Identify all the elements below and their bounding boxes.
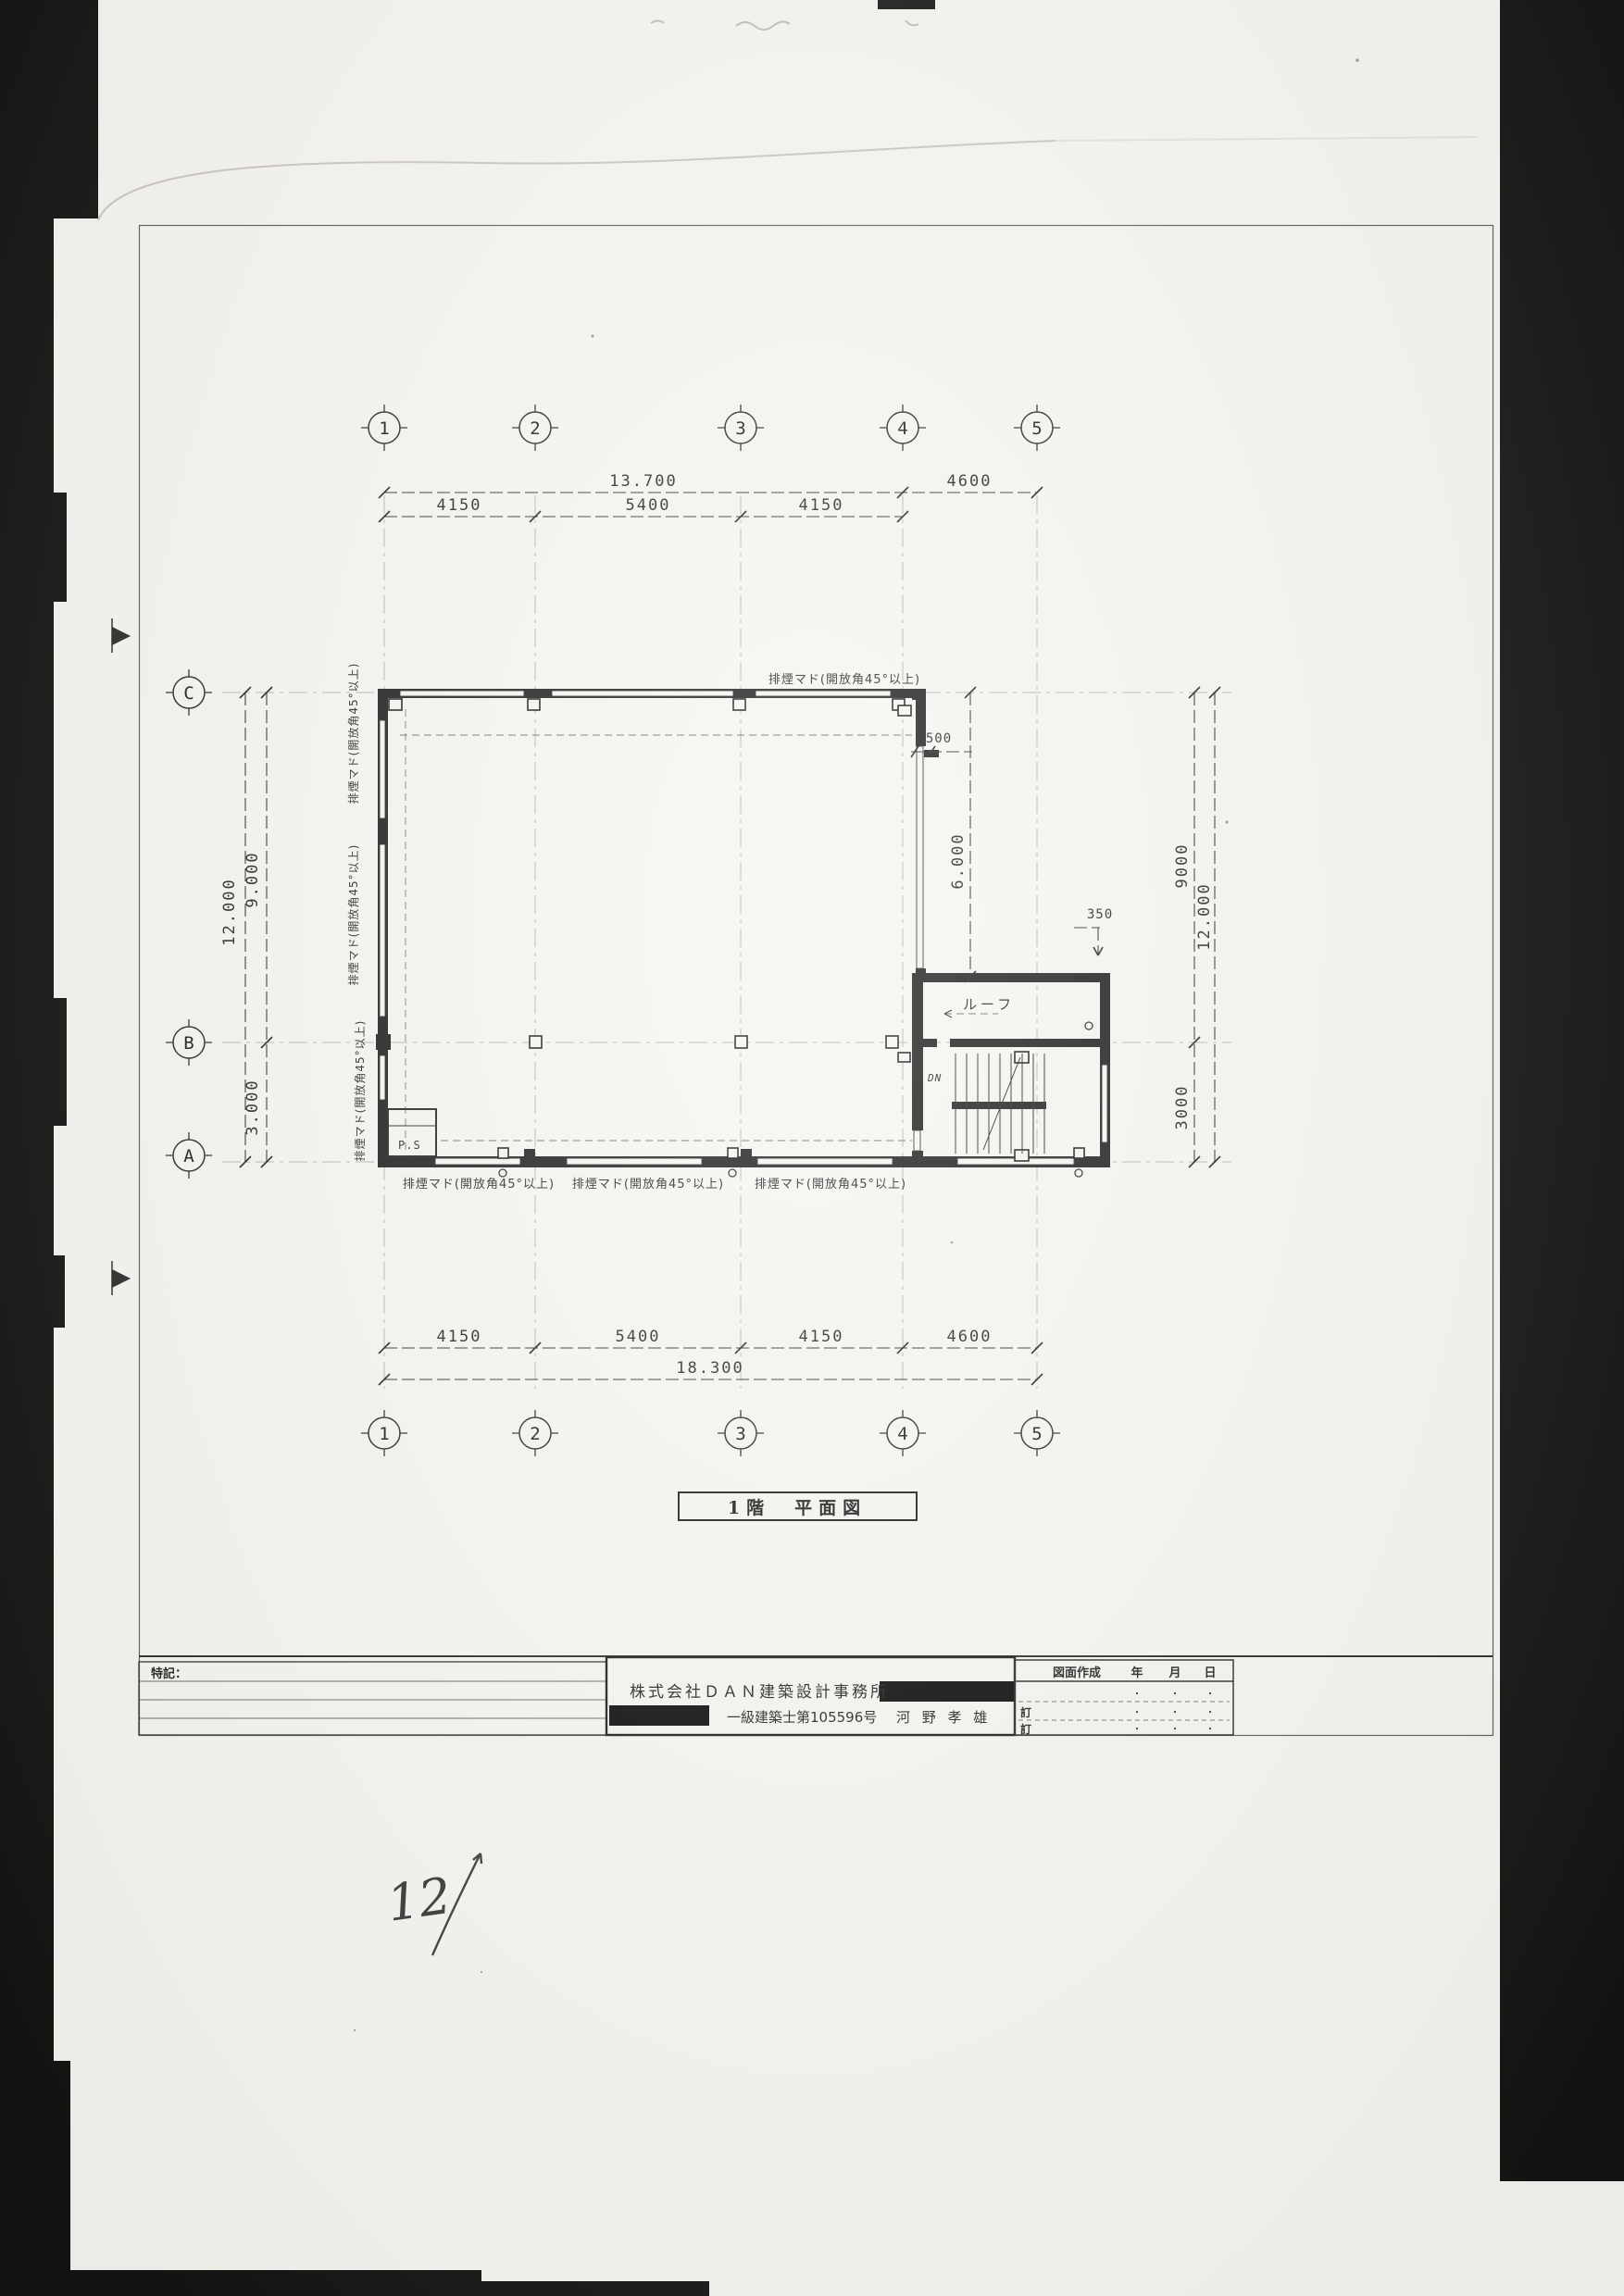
scan-smudges bbox=[651, 20, 918, 30]
license-number: 一級建築士第105596号 bbox=[727, 1709, 877, 1726]
handwritten-number: 12 bbox=[383, 1866, 455, 1933]
dim-bottom-4-5: 4600 bbox=[947, 1328, 993, 1346]
redaction-bar bbox=[880, 1681, 1015, 1702]
grid-label: 1 bbox=[379, 1424, 389, 1444]
dim-bottom-overall: 18.300 bbox=[676, 1359, 743, 1378]
roof-label: ルーフ bbox=[963, 996, 1015, 1013]
dim-corner-offset: 500 bbox=[926, 731, 952, 746]
dim-top-overall: 13.700 bbox=[609, 472, 677, 491]
date-dot: ・ bbox=[1170, 1708, 1180, 1718]
grid-bubble-col3-bottom: 3 bbox=[718, 1410, 764, 1456]
smoke-vent-note-top: 排煙マド(開放角45°以上) bbox=[768, 673, 920, 687]
grid-label: 4 bbox=[897, 418, 907, 439]
smoke-vent-note-bottom-1: 排煙マド(開放角45°以上) bbox=[403, 1178, 555, 1192]
grid-bubble-col2-top: 2 bbox=[512, 405, 558, 451]
grid-label: 3 bbox=[735, 418, 745, 439]
grid-label: B bbox=[183, 1033, 194, 1054]
firm-name: 株式会社ＤＡＮ建築設計事務所 bbox=[630, 1683, 889, 1702]
title-block: 特記： 株式会社ＤＡＮ建築設計事務所 一級建築士第105596号 河 野 孝 雄… bbox=[139, 1656, 1493, 1736]
dim-stair-bay: 6.000 bbox=[949, 832, 968, 889]
grid-centerlines bbox=[222, 495, 1231, 1389]
date-dot: ・ bbox=[1132, 1708, 1142, 1718]
grid-bubble-row-a: A bbox=[166, 1132, 212, 1179]
grid-label: 3 bbox=[735, 1424, 745, 1444]
month-label: 月 bbox=[1168, 1666, 1181, 1680]
dim-top-1-2: 4150 bbox=[437, 496, 482, 515]
grid-bubble-col4-top: 4 bbox=[880, 405, 926, 451]
dim-right-c-b: 9000 bbox=[1173, 843, 1192, 889]
revision-row-label: 訂 bbox=[1020, 1705, 1031, 1719]
grid-bubble-col1-top: 1 bbox=[361, 405, 407, 451]
dim-top-2-3: 5400 bbox=[626, 496, 671, 515]
drawing-title: 1階 平面図 bbox=[728, 1498, 867, 1518]
dim-eave-offset: 350 bbox=[1087, 907, 1113, 922]
grid-bubble-row-b: B bbox=[166, 1019, 212, 1066]
dim-bottom-3-4: 4150 bbox=[799, 1328, 844, 1346]
smoke-vent-note-left-1: 排煙マド(開放角45°以上) bbox=[346, 663, 360, 805]
created-label: 図面作成 bbox=[1053, 1666, 1101, 1680]
grid-bubble-col5-bottom: 5 bbox=[1014, 1410, 1060, 1456]
floor-plan-sheet: P.S DN ルーフ 13.700 4600 415 bbox=[0, 0, 1624, 2296]
smoke-vent-note-left-3: 排煙マド(開放角45°以上) bbox=[353, 1020, 367, 1162]
window-openings bbox=[380, 691, 1107, 1165]
date-dot: ・ bbox=[1132, 1725, 1142, 1735]
scan-black-bars bbox=[0, 0, 1624, 2296]
drawing-title-box: 1階 平面図 bbox=[679, 1492, 917, 1520]
year-label: 年 bbox=[1131, 1666, 1143, 1680]
date-dot: ・ bbox=[1170, 1725, 1180, 1735]
grid-label: 4 bbox=[897, 1424, 907, 1444]
dimension-lines bbox=[245, 493, 1215, 1379]
date-dot: ・ bbox=[1170, 1690, 1180, 1700]
dim-right-b-a: 3000 bbox=[1173, 1085, 1192, 1130]
interior-dashed-lines bbox=[400, 709, 998, 1151]
dimension-labels: 13.700 4600 4150 5400 4150 4150 5400 415… bbox=[220, 472, 1214, 1378]
dim-right-overall: 12.000 bbox=[1195, 882, 1214, 950]
day-label: 日 bbox=[1204, 1666, 1216, 1680]
grid-bubble-col1-bottom: 1 bbox=[361, 1410, 407, 1456]
stair-direction-label: DN bbox=[927, 1072, 942, 1084]
pipe-shaft-label: P.S bbox=[398, 1139, 421, 1152]
date-dots: ・ ・ ・ ・ ・ ・ ・ ・ ・ bbox=[1132, 1690, 1215, 1735]
dim-top-4-5: 4600 bbox=[947, 472, 993, 491]
grid-label: A bbox=[183, 1146, 194, 1167]
grid-bubble-col3-top: 3 bbox=[718, 405, 764, 451]
date-dot: ・ bbox=[1206, 1690, 1215, 1700]
grid-label: 2 bbox=[530, 418, 540, 439]
stair-treads bbox=[944, 1010, 1044, 1154]
smoke-vent-annotations: 排煙マド(開放角45°以上) 排煙マド(開放角45°以上) 排煙マド(開放角45… bbox=[346, 663, 920, 1192]
architect-name: 河 野 孝 雄 bbox=[896, 1709, 991, 1726]
dim-left-b-a: 3.000 bbox=[244, 1079, 262, 1135]
grid-label: 2 bbox=[530, 1424, 540, 1444]
grid-bubble-row-c: C bbox=[166, 669, 212, 716]
dim-bottom-1-2: 4150 bbox=[437, 1328, 482, 1346]
grid-bubble-col2-bottom: 2 bbox=[512, 1410, 558, 1456]
notes-label: 特記： bbox=[151, 1666, 187, 1681]
revision-row-label: 訂 bbox=[1020, 1722, 1031, 1736]
paper-edge-curve bbox=[98, 137, 1478, 220]
notes-box bbox=[139, 1662, 606, 1735]
grid-bubble-col5-top: 5 bbox=[1014, 405, 1060, 451]
grid-label: 5 bbox=[1031, 1424, 1042, 1444]
dim-top-3-4: 4150 bbox=[799, 496, 844, 515]
grid-label: 5 bbox=[1031, 418, 1042, 439]
section-marks bbox=[112, 618, 130, 1295]
dim-left-overall: 12.000 bbox=[220, 878, 239, 945]
dim-bottom-2-3: 5400 bbox=[616, 1328, 661, 1346]
date-dot: ・ bbox=[1206, 1725, 1215, 1735]
grid-bubbles: 1 2 3 4 5 1 2 bbox=[166, 405, 1060, 1456]
smoke-vent-note-left-2: 排煙マド(開放角45°以上) bbox=[346, 844, 360, 986]
column-marks bbox=[389, 699, 1084, 1161]
grid-label: C bbox=[183, 683, 194, 704]
smoke-vent-note-bottom-3: 排煙マド(開放角45°以上) bbox=[755, 1178, 906, 1192]
dim-left-c-b: 9.000 bbox=[244, 851, 262, 907]
grid-bubble-col4-bottom: 4 bbox=[880, 1410, 926, 1456]
smoke-vent-note-bottom-2: 排煙マド(開放角45°以上) bbox=[572, 1178, 724, 1192]
revision-table: 図面作成 年 月 日 訂 訂 ・ ・ ・ ・ ・ ・ ・ ・ ・ bbox=[1015, 1660, 1233, 1736]
date-dot: ・ bbox=[1132, 1690, 1142, 1700]
grid-label: 1 bbox=[379, 418, 389, 439]
scanned-drawing-page: P.S DN ルーフ 13.700 4600 415 bbox=[0, 0, 1624, 2296]
handwritten-page-number: 12 bbox=[383, 1853, 481, 1955]
redaction-bar bbox=[609, 1705, 709, 1726]
date-dot: ・ bbox=[1206, 1708, 1215, 1718]
